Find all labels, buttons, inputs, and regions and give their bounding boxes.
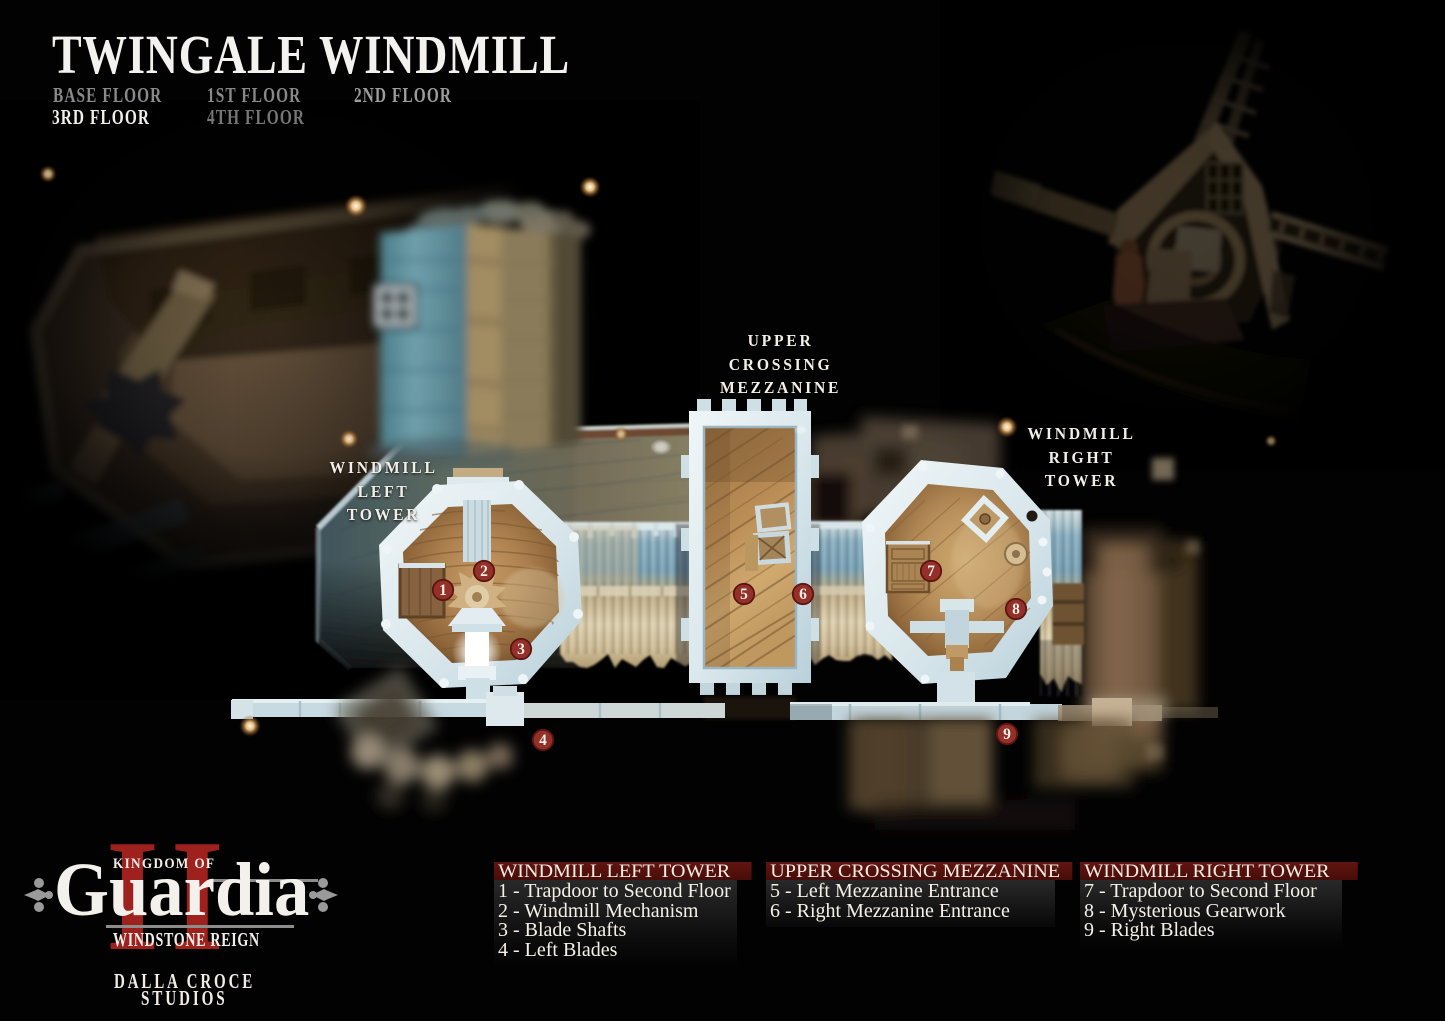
svg-text:6: 6 xyxy=(799,586,807,603)
svg-text:1: 1 xyxy=(439,582,447,599)
svg-text:7: 7 xyxy=(927,563,935,580)
svg-text:4: 4 xyxy=(539,732,547,749)
svg-text:8: 8 xyxy=(1012,601,1020,618)
svg-text:5: 5 xyxy=(740,586,748,603)
svg-text:3: 3 xyxy=(517,641,525,658)
svg-text:2: 2 xyxy=(480,563,488,580)
svg-text:9: 9 xyxy=(1003,726,1011,743)
